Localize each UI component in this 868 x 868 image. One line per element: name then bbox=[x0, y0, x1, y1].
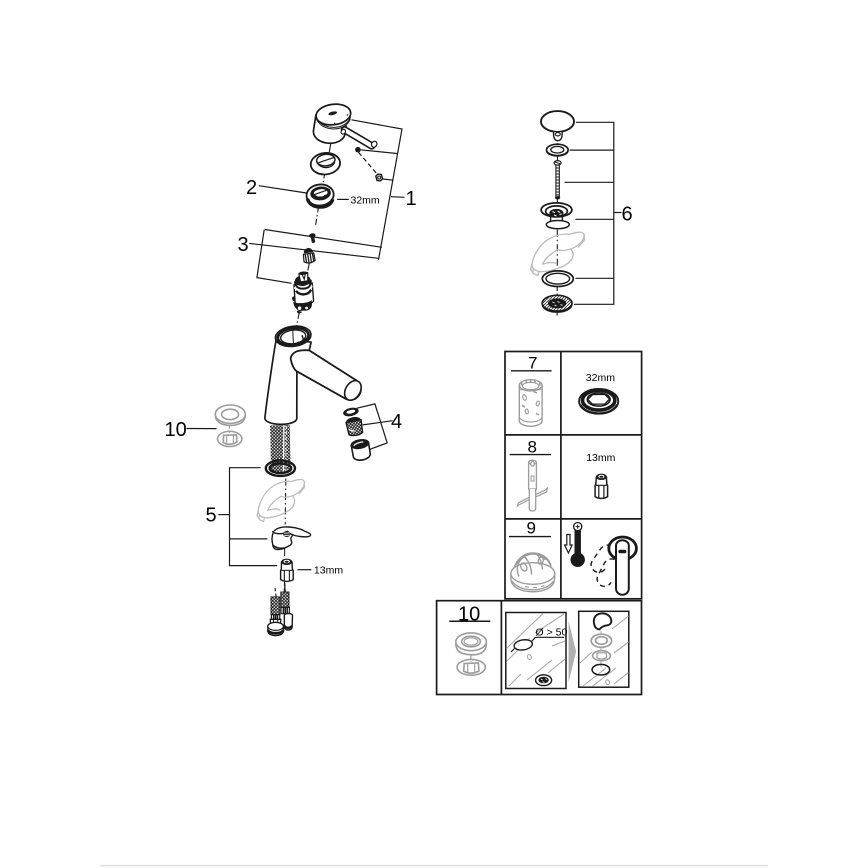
svg-text:Ø > 50: Ø > 50 bbox=[536, 626, 568, 638]
svg-text:2: 2 bbox=[246, 177, 257, 199]
svg-text:32mm: 32mm bbox=[586, 372, 615, 384]
svg-text:5: 5 bbox=[206, 505, 217, 527]
svg-text:32mm: 32mm bbox=[351, 194, 380, 206]
svg-text:13mm: 13mm bbox=[586, 452, 615, 464]
svg-text:13mm: 13mm bbox=[314, 565, 343, 577]
svg-text:10: 10 bbox=[458, 604, 480, 626]
svg-text:6: 6 bbox=[622, 204, 633, 226]
svg-text:10: 10 bbox=[165, 419, 187, 441]
svg-text:4: 4 bbox=[391, 411, 402, 433]
svg-text:8: 8 bbox=[528, 438, 537, 457]
svg-text:3: 3 bbox=[238, 234, 249, 256]
svg-text:1: 1 bbox=[406, 188, 417, 210]
svg-text:9: 9 bbox=[527, 519, 536, 538]
svg-text:7: 7 bbox=[528, 354, 537, 373]
